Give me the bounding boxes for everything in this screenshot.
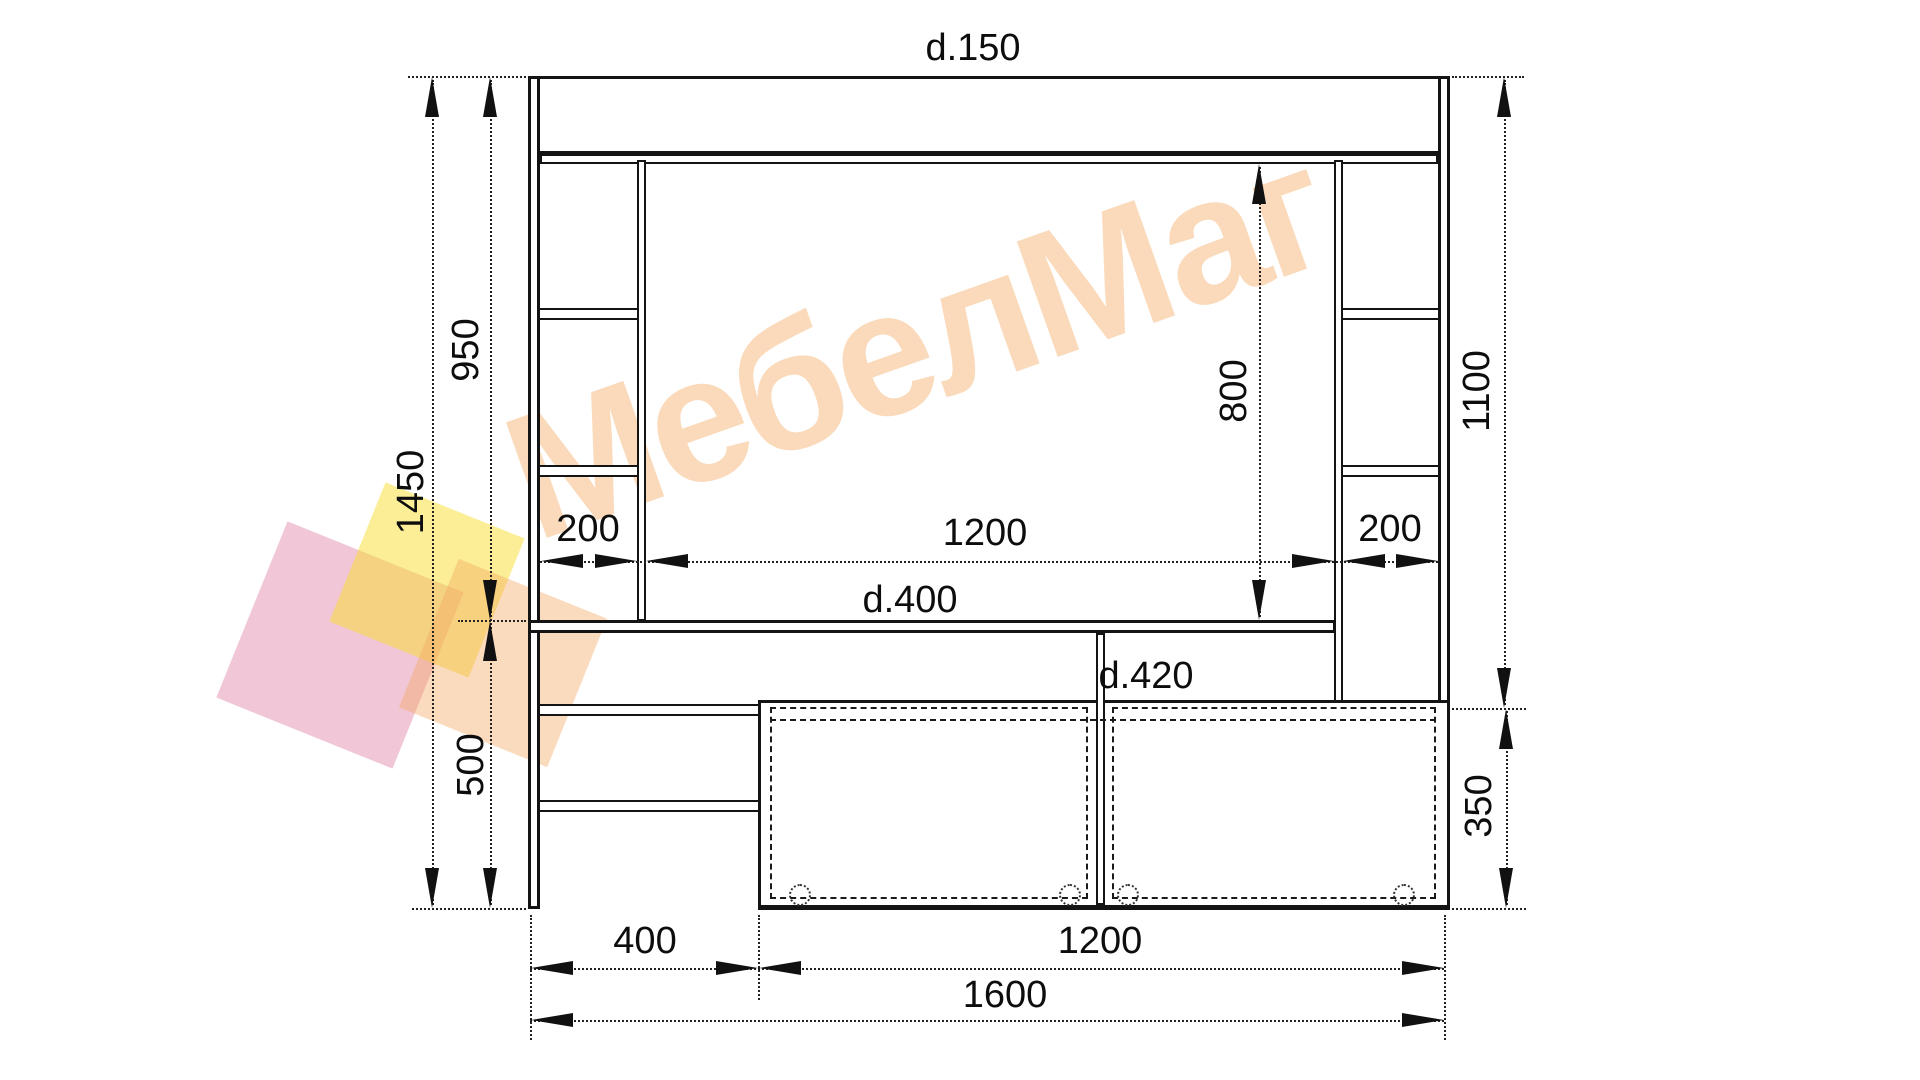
- dim-label-top-depth: d.150: [900, 26, 1046, 70]
- dim-label-bottom-left-width: 400: [565, 919, 725, 963]
- left-column-divider: [637, 160, 646, 621]
- arrow-200R-right: [1396, 554, 1438, 568]
- left-column-shelf-lower: [538, 465, 639, 477]
- dim-label-upper-height: 950: [442, 240, 490, 460]
- dim-label-right-height: 1100: [1453, 281, 1501, 501]
- cabinet-door-right: [1112, 707, 1436, 899]
- dim-label-total-width: 1600: [905, 973, 1105, 1017]
- arrow-800-bottom: [1252, 580, 1266, 620]
- dim-line-right-height: [1504, 80, 1506, 705]
- arrow-1200-left: [646, 554, 688, 568]
- door-hinge-circle-1: [789, 884, 811, 906]
- arrow-400-left: [531, 961, 573, 975]
- arrow-400-right: [716, 961, 758, 975]
- dim-line-400-1200: [530, 968, 1444, 970]
- right-column-shelf-lower: [1341, 465, 1440, 477]
- dim-label-cabinet-height: 350: [1455, 696, 1503, 916]
- left-column-shelf-upper: [538, 308, 639, 320]
- arrow-1450-bottom: [425, 868, 439, 908]
- ext-line-floor-left: [412, 908, 526, 910]
- left-side-panel: [528, 76, 540, 909]
- arrow-800-top: [1252, 164, 1266, 204]
- door-hinge-circle-3: [1117, 884, 1139, 906]
- arrow-200R-left: [1343, 554, 1385, 568]
- arrow-1450-top: [425, 77, 439, 117]
- under-desk-shelf-upper: [538, 704, 760, 716]
- arrow-1200b-left: [759, 961, 801, 975]
- ext-line-top-right: [1452, 76, 1524, 78]
- arrow-1200b-right: [1402, 961, 1444, 975]
- dim-label-total-height: 1450: [387, 382, 435, 602]
- ext-line-bottom-x758: [758, 915, 760, 1000]
- dim-label-cabinet-width: 1200: [1000, 919, 1200, 963]
- arrow-200L-right: [595, 554, 637, 568]
- ext-line-bottom-x1444: [1444, 915, 1446, 1040]
- arrow-950-bottom: [483, 580, 497, 620]
- door-hinge-circle-2: [1059, 884, 1081, 906]
- dim-label-lower-height: 500: [447, 655, 495, 875]
- right-side-panel: [1438, 76, 1450, 709]
- door-hinge-circle-4: [1393, 884, 1415, 906]
- top-board: [528, 76, 1450, 154]
- under-desk-shelf-lower: [538, 800, 760, 812]
- arrow-950-top: [483, 77, 497, 117]
- dim-line-1600: [530, 1020, 1444, 1022]
- arrow-200L-left: [541, 554, 583, 568]
- arrow-1600-right: [1402, 1013, 1444, 1027]
- dim-label-cabinet-depth: d.420: [1056, 654, 1236, 698]
- cabinet-door-left: [770, 707, 1088, 899]
- dim-label-niche-width: 1200: [885, 511, 1085, 555]
- top-thin-shelf: [540, 154, 1438, 164]
- arrow-1200-right: [1292, 554, 1334, 568]
- dim-label-right-column-width: 200: [1320, 507, 1460, 551]
- dim-label-desk-depth: d.400: [820, 578, 1000, 622]
- right-column-shelf-upper: [1341, 308, 1440, 320]
- dim-label-niche-height: 800: [1210, 281, 1258, 501]
- furniture-drawing-page: { "drawing": { "type": "furniture front-…: [0, 0, 1920, 1080]
- dim-line-niche-height: [1259, 167, 1261, 617]
- dim-label-left-column-width: 200: [518, 507, 658, 551]
- door-top-inner-line: [770, 719, 1436, 721]
- arrow-1100-top: [1497, 77, 1511, 117]
- arrow-1600-left: [531, 1013, 573, 1027]
